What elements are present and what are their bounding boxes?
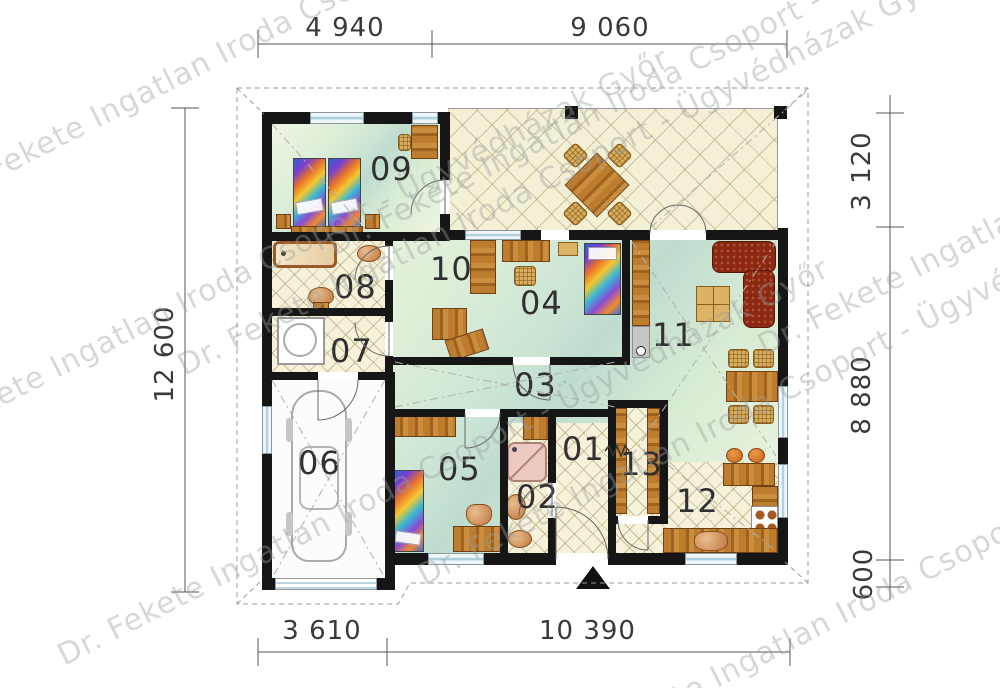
window xyxy=(428,553,484,565)
room-label-05: 05 xyxy=(438,450,481,488)
kitchen-sink xyxy=(694,531,728,551)
desk xyxy=(411,125,438,159)
washbasin xyxy=(357,245,381,262)
dim-right-upper: 3 120 xyxy=(847,111,877,231)
door-opening-05 xyxy=(465,409,500,417)
dim-bottom-right: 10 390 xyxy=(515,616,660,646)
door-opening-07 xyxy=(385,322,393,356)
window xyxy=(465,230,521,240)
door-opening-08 xyxy=(385,246,393,280)
window xyxy=(310,112,364,124)
dim-top-right: 9 060 xyxy=(550,13,670,43)
entrance-door-opening xyxy=(556,553,608,565)
nightstand xyxy=(276,214,291,229)
washing-machine-drum-icon xyxy=(283,323,317,357)
drain-icon xyxy=(281,251,286,256)
window xyxy=(778,464,788,518)
toilet xyxy=(508,530,532,548)
door-opening-13 xyxy=(618,516,648,524)
vestibule-floor xyxy=(616,524,668,553)
zigzag-icon xyxy=(604,444,632,458)
dining-table xyxy=(726,371,778,402)
wall-13-top xyxy=(608,400,668,408)
wall-hall-bottom xyxy=(392,409,616,417)
door-opening-09 xyxy=(440,180,450,214)
entrance-marker-icon xyxy=(576,566,610,589)
desk xyxy=(502,240,550,262)
wall-04-11 xyxy=(622,230,630,363)
sofa-vertical xyxy=(743,270,775,328)
pillow xyxy=(588,247,617,260)
pouf xyxy=(466,504,492,526)
wall-hall-top xyxy=(392,357,630,365)
wall-08-07 xyxy=(262,308,392,316)
car-wheel xyxy=(286,512,293,536)
wardrobe-cabinet xyxy=(470,240,496,294)
window xyxy=(778,386,788,438)
room-label-07: 07 xyxy=(330,332,373,370)
dining-chair xyxy=(753,349,774,368)
room-label-06: 06 xyxy=(298,444,341,482)
car-wheel xyxy=(345,418,352,442)
dining-chair xyxy=(728,349,749,368)
coffee-table xyxy=(696,286,730,322)
door-opening-04 xyxy=(513,357,550,365)
garage-door xyxy=(275,578,377,590)
wall-left-exterior xyxy=(262,112,272,590)
nightstand xyxy=(365,214,380,229)
sofa-horizontal xyxy=(712,241,776,273)
double-bed-mattress-right xyxy=(328,158,361,228)
room-label-12: 12 xyxy=(676,482,719,520)
shelf xyxy=(558,242,578,256)
terrace-column xyxy=(774,106,787,119)
burner-icon xyxy=(636,346,646,356)
desk xyxy=(453,526,505,552)
wall-05-02 xyxy=(500,417,508,557)
car-wheel xyxy=(286,418,293,442)
kitchen-counter xyxy=(632,240,650,326)
room-label-01: 01 xyxy=(562,430,605,468)
room-label-09: 09 xyxy=(370,150,413,188)
window xyxy=(262,406,272,454)
chair xyxy=(514,266,536,286)
dim-right-lower: 600 xyxy=(849,534,879,614)
dim-left-total: 12 600 xyxy=(150,294,180,414)
wall-13-left xyxy=(608,400,616,555)
car-wheel xyxy=(345,512,352,536)
bathroom-cabinet xyxy=(523,416,551,440)
wall-09-bottom xyxy=(262,232,450,241)
door-opening-garage xyxy=(318,372,358,380)
stool xyxy=(748,448,765,463)
terrace-double-door-opening xyxy=(650,230,706,240)
wall-09-right xyxy=(440,112,450,240)
room-label-10: 10 xyxy=(430,250,473,288)
desk-chair xyxy=(398,134,411,151)
dining-chair xyxy=(728,405,749,424)
room-label-11: 11 xyxy=(652,316,695,354)
dim-bottom-left: 3 610 xyxy=(262,616,382,646)
room-label-03: 03 xyxy=(514,366,557,404)
room-label-04: 04 xyxy=(520,284,563,322)
kitchen-table xyxy=(723,463,775,486)
window xyxy=(685,553,737,565)
terrace-door-opening xyxy=(541,230,569,240)
drain-icon xyxy=(512,447,517,452)
stool xyxy=(726,448,743,463)
floor-plan-canvas: 01 02 03 04 05 06 07 08 09 10 11 12 13 4… xyxy=(0,0,1000,688)
dim-right-middle: 8 880 xyxy=(847,335,877,455)
room-label-08: 08 xyxy=(334,268,377,306)
room-label-02: 02 xyxy=(516,478,559,516)
dining-chair xyxy=(753,405,774,424)
dim-top-left: 4 940 xyxy=(285,13,405,43)
window xyxy=(412,112,438,124)
double-bed-mattress-left xyxy=(293,158,326,228)
terrace-column xyxy=(565,106,578,119)
